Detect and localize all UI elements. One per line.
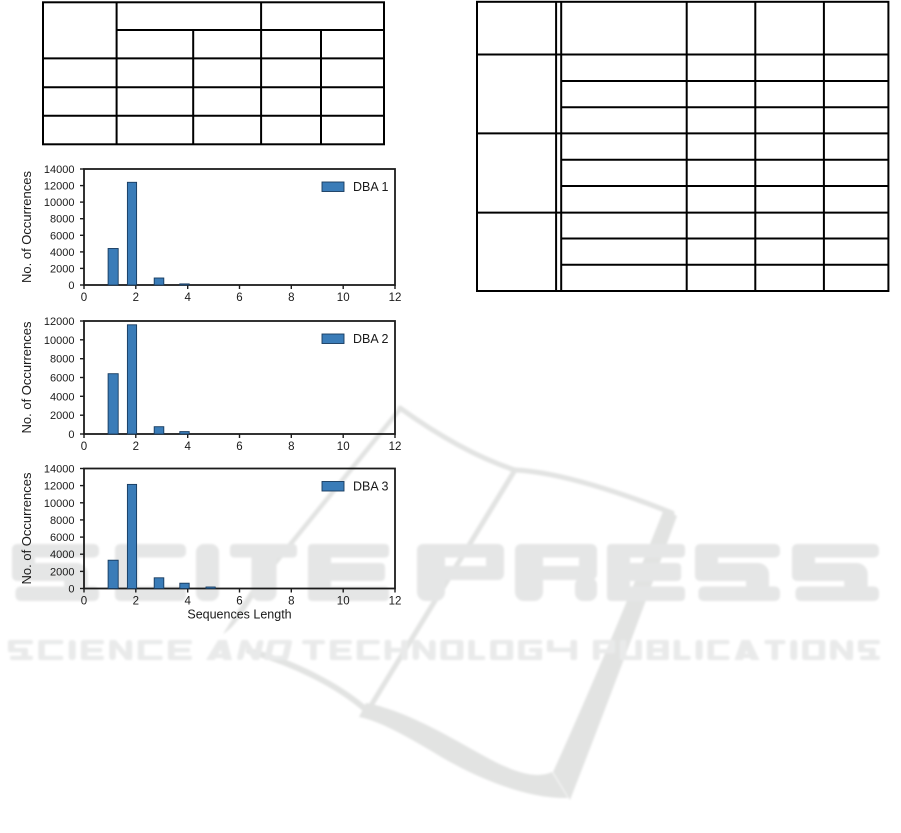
svg-text:0: 0 xyxy=(68,429,74,441)
svg-text:0: 0 xyxy=(81,596,87,608)
svg-text:12000: 12000 xyxy=(44,481,75,493)
svg-text:4: 4 xyxy=(184,596,191,608)
svg-text:10000: 10000 xyxy=(44,335,75,347)
svg-text:2000: 2000 xyxy=(50,263,74,275)
svg-text:14000: 14000 xyxy=(44,464,75,476)
svg-text:12: 12 xyxy=(389,441,402,453)
svg-text:0: 0 xyxy=(81,292,87,304)
svg-text:DBA 3: DBA 3 xyxy=(353,480,388,494)
svg-text:12000: 12000 xyxy=(44,316,75,328)
svg-text:No. of Occurrences: No. of Occurrences xyxy=(19,321,34,433)
svg-text:6: 6 xyxy=(236,441,242,453)
svg-text:0: 0 xyxy=(68,584,74,596)
svg-text:10000: 10000 xyxy=(44,498,75,510)
svg-text:6000: 6000 xyxy=(50,532,74,544)
svg-text:8000: 8000 xyxy=(50,214,74,226)
svg-text:6: 6 xyxy=(236,596,242,608)
svg-text:6000: 6000 xyxy=(50,373,74,385)
svg-text:6: 6 xyxy=(236,292,242,304)
svg-text:10: 10 xyxy=(337,292,350,304)
svg-text:6000: 6000 xyxy=(50,230,74,242)
svg-text:4: 4 xyxy=(184,441,191,453)
svg-text:4000: 4000 xyxy=(50,549,74,561)
svg-text:2000: 2000 xyxy=(50,566,74,578)
svg-text:8000: 8000 xyxy=(50,515,74,527)
svg-text:2: 2 xyxy=(133,292,139,304)
svg-text:10: 10 xyxy=(337,596,350,608)
svg-text:DBA 1: DBA 1 xyxy=(353,180,388,194)
svg-text:4: 4 xyxy=(184,292,191,304)
svg-text:0: 0 xyxy=(81,441,87,453)
svg-text:8: 8 xyxy=(288,292,294,304)
svg-text:2000: 2000 xyxy=(50,410,74,422)
svg-text:8: 8 xyxy=(288,441,294,453)
svg-text:12: 12 xyxy=(389,292,402,304)
svg-text:10000: 10000 xyxy=(44,197,75,209)
svg-text:4000: 4000 xyxy=(50,247,74,259)
svg-text:8000: 8000 xyxy=(50,354,74,366)
svg-text:2: 2 xyxy=(133,441,139,453)
svg-text:10: 10 xyxy=(337,441,350,453)
svg-text:Sequences Length: Sequences Length xyxy=(187,608,291,622)
svg-text:4000: 4000 xyxy=(50,391,74,403)
svg-text:12: 12 xyxy=(389,596,402,608)
svg-text:12000: 12000 xyxy=(44,181,75,193)
svg-text:No. of Occurrences: No. of Occurrences xyxy=(19,472,34,584)
svg-text:DBA 2: DBA 2 xyxy=(353,332,388,346)
svg-text:0: 0 xyxy=(68,280,74,292)
svg-text:14000: 14000 xyxy=(44,164,75,176)
svg-text:8: 8 xyxy=(288,596,294,608)
svg-text:2: 2 xyxy=(133,596,139,608)
svg-text:No. of Occurrences: No. of Occurrences xyxy=(19,171,34,283)
